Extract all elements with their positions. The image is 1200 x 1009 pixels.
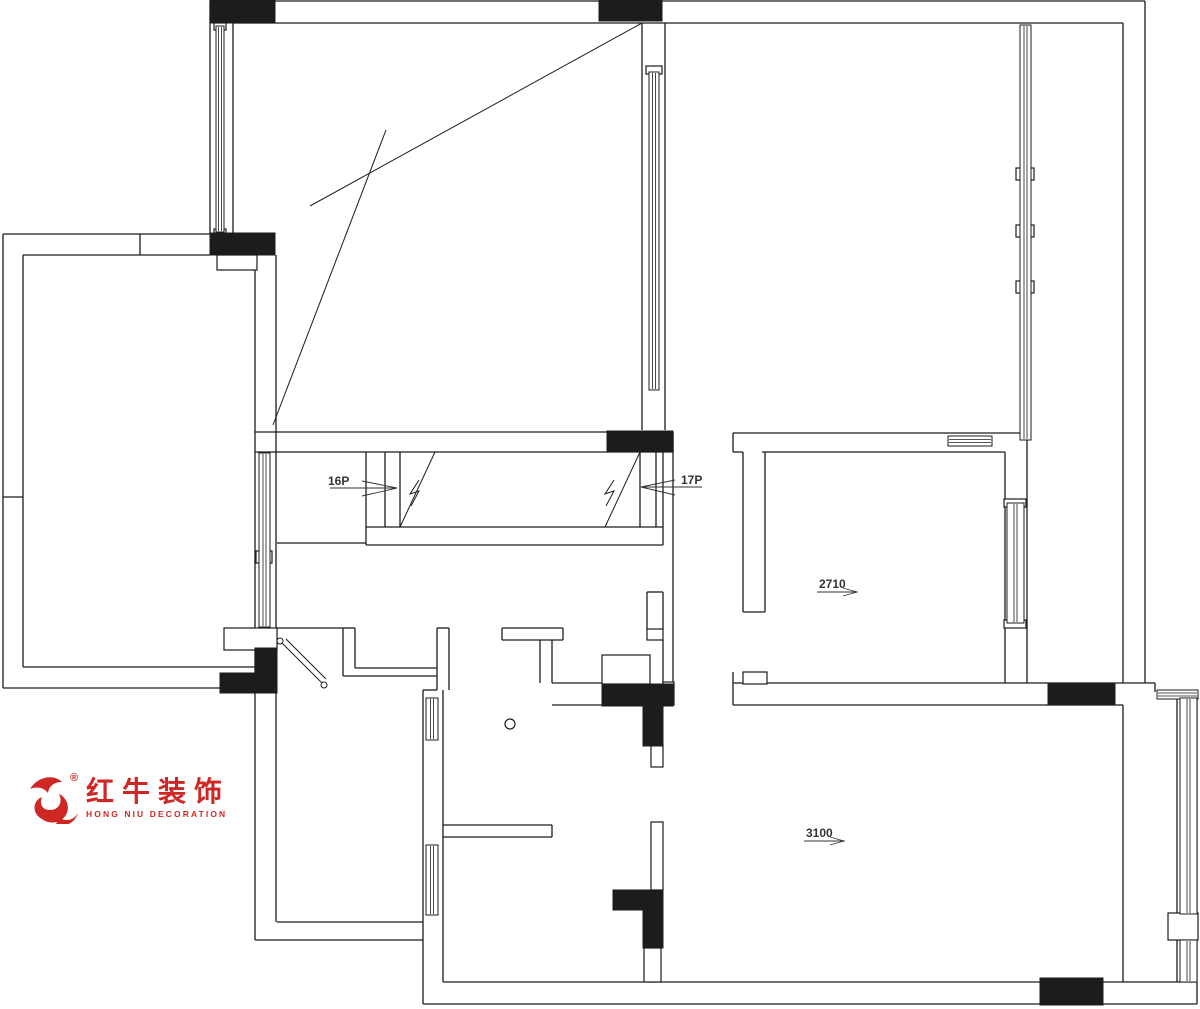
dimension-labels-layer: 16P17P27103100 — [328, 473, 846, 840]
dimension-label: 3100 — [806, 826, 833, 840]
hongniu-logo: ® 红牛装饰 HONG NIU DECORATION — [26, 772, 230, 824]
logo-chinese-text: 红牛装饰 — [86, 778, 230, 806]
dimension-label: 17P — [681, 473, 702, 487]
logo-english-text: HONG NIU DECORATION — [86, 809, 230, 819]
hongniu-bird-icon: ® — [26, 772, 78, 824]
annotations-layer — [330, 480, 858, 845]
registered-mark: ® — [70, 772, 78, 784]
floorplan-page: 16P17P27103100 ® 红牛装饰 HONG NIU DECORATIO… — [0, 0, 1200, 1009]
floorplan-drawing: 16P17P27103100 — [0, 0, 1200, 1009]
dimension-label: 16P — [328, 474, 349, 488]
windows-layer — [216, 25, 1198, 982]
dimension-label: 2710 — [819, 577, 846, 591]
wall-blocks-layer — [214, 23, 1198, 982]
door-swing-layer — [277, 638, 327, 688]
